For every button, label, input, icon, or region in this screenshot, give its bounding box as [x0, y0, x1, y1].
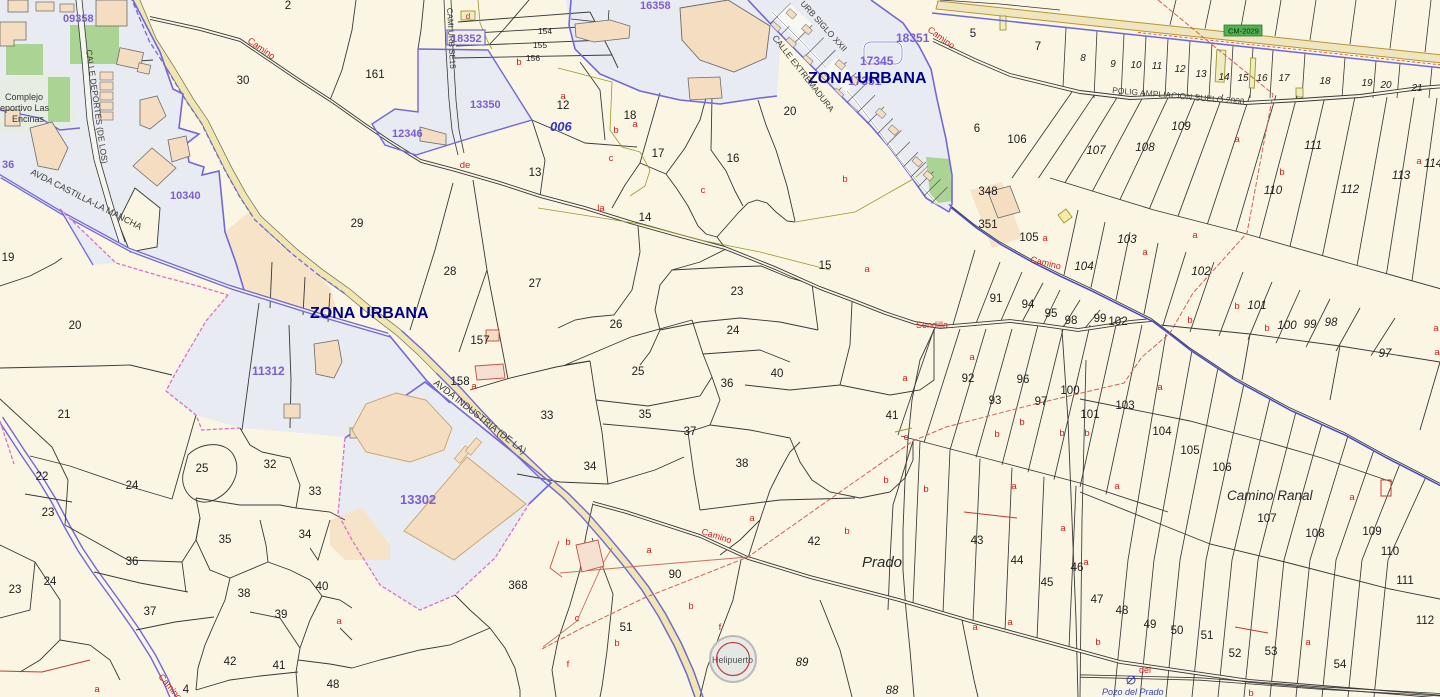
svg-text:a: a	[471, 381, 477, 392]
svg-text:11: 11	[1152, 61, 1162, 72]
svg-text:b: b	[565, 537, 570, 548]
svg-text:9: 9	[1110, 59, 1116, 70]
svg-text:a: a	[1305, 637, 1311, 648]
svg-text:103: 103	[1117, 234, 1137, 246]
svg-text:f: f	[567, 659, 570, 670]
svg-text:94: 94	[1022, 299, 1035, 311]
svg-text:5: 5	[970, 28, 976, 40]
svg-text:92: 92	[962, 373, 975, 385]
svg-text:b: b	[842, 174, 847, 185]
svg-text:107: 107	[1086, 145, 1106, 157]
svg-text:a: a	[1083, 557, 1089, 568]
svg-text:105: 105	[1180, 445, 1199, 457]
svg-text:b: b	[1279, 167, 1284, 178]
svg-text:c: c	[904, 432, 909, 443]
svg-text:a: a	[1234, 134, 1240, 145]
svg-text:34: 34	[299, 529, 312, 541]
svg-text:25: 25	[196, 463, 209, 475]
svg-text:Pozo del Prado: Pozo del Prado	[1102, 687, 1164, 697]
svg-text:a: a	[632, 119, 638, 130]
svg-text:348: 348	[978, 186, 997, 198]
svg-text:34: 34	[584, 461, 597, 473]
svg-text:a: a	[1007, 617, 1013, 628]
svg-text:ZONA URBANA: ZONA URBANA	[808, 70, 927, 87]
svg-text:CM-2029: CM-2029	[1228, 27, 1259, 36]
svg-text:49: 49	[1144, 619, 1157, 631]
svg-text:99: 99	[1094, 313, 1107, 325]
svg-text:b: b	[516, 57, 521, 68]
svg-text:36: 36	[2, 159, 14, 171]
svg-text:45: 45	[1041, 577, 1054, 589]
svg-text:11312: 11312	[252, 364, 285, 378]
svg-text:32: 32	[264, 459, 277, 471]
svg-text:a: a	[1142, 247, 1148, 258]
svg-text:113: 113	[1392, 170, 1411, 182]
svg-text:15: 15	[1237, 73, 1249, 84]
svg-text:158: 158	[450, 376, 469, 388]
svg-text:47: 47	[1091, 594, 1104, 606]
svg-text:89: 89	[796, 657, 809, 669]
svg-text:108: 108	[1305, 528, 1324, 540]
svg-text:ZONA URBANA: ZONA URBANA	[310, 305, 429, 322]
svg-text:16: 16	[1256, 73, 1268, 84]
svg-text:13: 13	[529, 167, 542, 179]
svg-text:105: 105	[1019, 232, 1038, 244]
svg-text:24: 24	[727, 325, 740, 337]
svg-text:43: 43	[971, 535, 984, 547]
svg-text:13302: 13302	[400, 492, 436, 507]
svg-text:98: 98	[1325, 317, 1338, 329]
svg-text:35: 35	[219, 534, 232, 546]
svg-text:b: b	[614, 638, 619, 649]
svg-text:368: 368	[508, 580, 527, 592]
svg-text:93: 93	[989, 395, 1002, 407]
svg-text:37: 37	[684, 426, 697, 438]
svg-text:46: 46	[1071, 562, 1084, 574]
svg-text:12: 12	[1174, 64, 1186, 75]
svg-text:101: 101	[1080, 409, 1099, 421]
svg-text:Helipuerto: Helipuerto	[712, 655, 753, 665]
svg-text:Sendilla: Sendilla	[916, 320, 948, 330]
svg-text:c: c	[609, 153, 614, 164]
svg-text:90: 90	[669, 569, 682, 581]
svg-text:2: 2	[285, 0, 291, 12]
svg-text:10: 10	[1130, 60, 1142, 71]
svg-text:a: a	[1433, 323, 1439, 334]
svg-text:52: 52	[1229, 648, 1242, 660]
svg-text:42: 42	[224, 656, 237, 668]
svg-text:17345: 17345	[860, 54, 894, 68]
svg-text:b: b	[613, 125, 618, 136]
svg-text:f: f	[719, 622, 722, 633]
svg-text:97: 97	[1379, 348, 1392, 360]
svg-text:17: 17	[652, 148, 665, 160]
svg-text:a: a	[1060, 523, 1066, 534]
svg-text:b: b	[1234, 301, 1239, 312]
svg-text:156: 156	[526, 53, 540, 63]
svg-text:b: b	[923, 484, 928, 495]
svg-text:18351: 18351	[896, 31, 930, 45]
svg-text:a: a	[646, 545, 652, 556]
svg-text:40: 40	[771, 368, 784, 380]
svg-text:b: b	[883, 475, 888, 486]
svg-text:19: 19	[2, 252, 15, 264]
svg-text:111: 111	[1304, 140, 1321, 152]
svg-text:b: b	[1264, 323, 1269, 334]
svg-text:36: 36	[721, 378, 734, 390]
svg-text:41: 41	[273, 660, 286, 672]
svg-text:40: 40	[316, 581, 329, 593]
svg-text:6: 6	[974, 123, 980, 135]
svg-text:d: d	[466, 12, 470, 21]
svg-text:24: 24	[126, 480, 139, 492]
svg-text:114: 114	[1424, 158, 1440, 170]
svg-text:14: 14	[1218, 72, 1230, 83]
svg-text:28: 28	[444, 266, 457, 278]
svg-text:102: 102	[1108, 316, 1127, 328]
svg-text:a: a	[1157, 382, 1163, 393]
svg-text:a: a	[1192, 230, 1198, 241]
svg-text:106: 106	[1212, 462, 1231, 474]
svg-text:97: 97	[1035, 396, 1048, 408]
svg-text:24: 24	[44, 576, 57, 588]
svg-text:21: 21	[58, 409, 71, 421]
svg-text:a: a	[969, 352, 975, 363]
svg-text:8: 8	[1080, 53, 1086, 64]
svg-text:a: a	[1434, 347, 1440, 358]
svg-text:155: 155	[533, 40, 547, 50]
svg-text:10340: 10340	[170, 190, 201, 202]
svg-text:19: 19	[1361, 78, 1373, 89]
svg-text:20: 20	[1379, 80, 1392, 91]
svg-text:de: de	[460, 160, 471, 171]
svg-text:112: 112	[1341, 184, 1360, 196]
svg-text:a: a	[1349, 492, 1355, 503]
svg-text:13: 13	[1195, 69, 1207, 80]
svg-text:16358: 16358	[640, 0, 671, 12]
svg-text:29: 29	[351, 218, 364, 230]
svg-text:104: 104	[1152, 426, 1172, 438]
svg-text:09358: 09358	[63, 13, 94, 25]
svg-text:a: a	[1114, 481, 1120, 492]
svg-text:109: 109	[1362, 526, 1381, 538]
svg-text:a: a	[864, 264, 870, 275]
svg-text:006: 006	[550, 119, 572, 134]
svg-text:del: del	[1139, 665, 1151, 675]
svg-text:b: b	[1084, 428, 1089, 439]
svg-text:103: 103	[1115, 400, 1134, 412]
svg-text:b: b	[1187, 315, 1192, 326]
svg-text:25: 25	[632, 366, 645, 378]
svg-text:33: 33	[541, 410, 554, 422]
svg-text:a: a	[749, 513, 755, 524]
svg-text:c: c	[701, 185, 706, 196]
svg-text:95: 95	[1045, 308, 1058, 320]
svg-text:26: 26	[610, 319, 623, 331]
svg-text:Complejo: Complejo	[5, 92, 43, 102]
svg-text:110: 110	[1381, 546, 1399, 558]
svg-text:la: la	[597, 203, 605, 214]
svg-text:39: 39	[275, 609, 288, 621]
svg-text:101: 101	[1247, 300, 1266, 312]
svg-text:110: 110	[1264, 185, 1283, 197]
svg-text:a: a	[902, 373, 908, 384]
svg-text:b: b	[1248, 688, 1253, 697]
svg-text:a: a	[1042, 233, 1048, 244]
svg-text:96: 96	[1017, 374, 1030, 386]
svg-text:23: 23	[9, 584, 22, 596]
svg-text:a: a	[336, 616, 342, 627]
svg-text:Camino Ranal: Camino Ranal	[1227, 488, 1314, 503]
svg-text:b: b	[688, 601, 693, 612]
svg-text:23: 23	[731, 286, 744, 298]
svg-text:100: 100	[1277, 320, 1297, 332]
svg-text:b: b	[1095, 637, 1100, 648]
svg-text:106: 106	[1007, 134, 1026, 146]
svg-text:88: 88	[886, 685, 899, 697]
svg-text:98: 98	[1065, 315, 1078, 327]
svg-text:7: 7	[1035, 41, 1041, 53]
svg-text:27: 27	[529, 278, 542, 290]
svg-text:b: b	[1059, 428, 1064, 439]
svg-text:15: 15	[819, 260, 832, 272]
svg-text:100: 100	[1060, 385, 1079, 397]
svg-text:18: 18	[1319, 76, 1331, 87]
svg-text:b: b	[1019, 417, 1024, 428]
svg-text:48: 48	[327, 679, 340, 691]
svg-text:22: 22	[36, 471, 49, 483]
svg-text:eportivo Las: eportivo Las	[0, 103, 50, 113]
svg-text:14: 14	[639, 212, 652, 224]
svg-text:109: 109	[1171, 121, 1191, 133]
svg-text:16: 16	[727, 153, 740, 165]
svg-text:54: 54	[1334, 659, 1347, 671]
svg-text:Encinas: Encinas	[12, 114, 45, 124]
svg-text:21: 21	[1410, 83, 1422, 94]
svg-text:23: 23	[42, 507, 55, 519]
svg-text:a: a	[972, 622, 978, 633]
svg-text:99: 99	[1304, 319, 1317, 331]
svg-text:41: 41	[886, 410, 899, 422]
svg-text:38: 38	[238, 588, 251, 600]
svg-text:112: 112	[1416, 615, 1434, 627]
svg-text:51: 51	[1201, 630, 1214, 642]
svg-text:13350: 13350	[470, 99, 501, 111]
svg-text:a: a	[1416, 156, 1422, 167]
svg-text:a: a	[94, 684, 100, 695]
svg-text:161: 161	[365, 69, 384, 81]
svg-text:b: b	[844, 526, 849, 537]
svg-text:91: 91	[990, 293, 1003, 305]
svg-text:a: a	[560, 91, 566, 102]
svg-text:104: 104	[1074, 261, 1093, 273]
svg-text:51: 51	[620, 622, 633, 634]
svg-text:48: 48	[1116, 605, 1129, 617]
svg-text:50: 50	[1171, 625, 1184, 637]
svg-text:20: 20	[784, 106, 797, 118]
svg-text:30: 30	[237, 75, 250, 87]
svg-text:17: 17	[1278, 73, 1290, 84]
svg-text:33: 33	[309, 486, 322, 498]
svg-text:42: 42	[808, 536, 821, 548]
svg-text:36: 36	[126, 556, 139, 568]
svg-text:44: 44	[1011, 555, 1024, 567]
svg-text:37: 37	[144, 606, 157, 618]
svg-text:102: 102	[1191, 266, 1211, 278]
svg-text:20: 20	[69, 320, 82, 332]
svg-text:c: c	[575, 613, 580, 624]
svg-text:154: 154	[538, 26, 552, 36]
svg-text:53: 53	[1265, 646, 1278, 658]
svg-text:12346: 12346	[392, 128, 423, 140]
svg-text:108: 108	[1135, 142, 1155, 154]
svg-text:a: a	[1011, 481, 1017, 492]
svg-text:157: 157	[470, 335, 489, 347]
svg-text:107: 107	[1257, 513, 1276, 525]
svg-text:38: 38	[736, 458, 749, 470]
svg-text:111: 111	[1396, 575, 1413, 587]
svg-text:b: b	[994, 429, 999, 440]
svg-text:Prado: Prado	[862, 554, 902, 571]
svg-text:35: 35	[639, 409, 652, 421]
svg-text:351: 351	[978, 219, 997, 231]
